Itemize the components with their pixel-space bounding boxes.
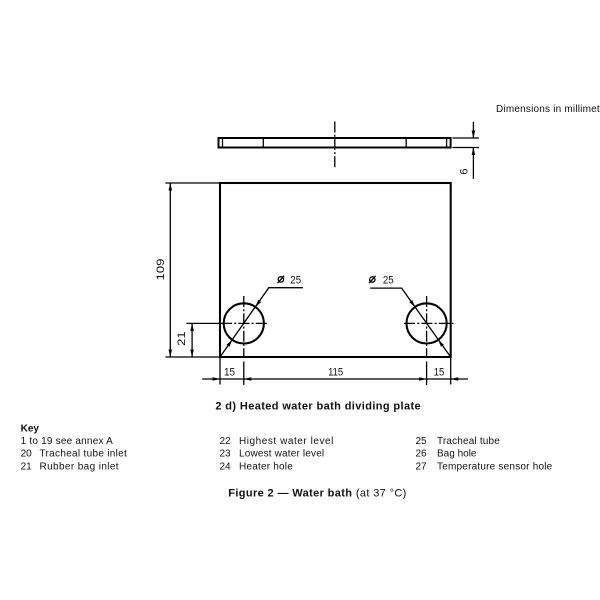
svg-text:25: 25 xyxy=(383,274,394,286)
svg-text:Temperature sensor hole: Temperature sensor hole xyxy=(437,462,553,473)
svg-text:Bag hole: Bag hole xyxy=(437,449,477,460)
svg-text:1 to 19 see annex A: 1 to 19 see annex A xyxy=(21,436,114,447)
svg-text:23: 23 xyxy=(220,449,232,460)
svg-text:15: 15 xyxy=(224,367,235,379)
svg-text:25: 25 xyxy=(416,436,428,447)
svg-text:109: 109 xyxy=(155,259,167,281)
svg-text:Key: Key xyxy=(21,424,40,435)
svg-text:2 d) Heated water bath dividin: 2 d) Heated water bath dividing plate xyxy=(215,400,421,412)
svg-text:Tracheal tube: Tracheal tube xyxy=(437,436,500,447)
svg-text:Rubber bag inlet: Rubber bag inlet xyxy=(40,462,119,473)
svg-text:24: 24 xyxy=(220,462,232,473)
svg-text:Highest water level: Highest water level xyxy=(239,436,334,447)
svg-text:Figure 2 — Water bath (at 37 °: Figure 2 — Water bath (at 37 °C) xyxy=(228,487,406,499)
svg-text:26: 26 xyxy=(416,449,428,460)
svg-text:25: 25 xyxy=(290,274,301,286)
svg-text:Heater hole: Heater hole xyxy=(239,462,293,473)
svg-text:Tracheal tube inlet: Tracheal tube inlet xyxy=(40,449,128,460)
svg-text:21: 21 xyxy=(176,331,188,346)
svg-text:15: 15 xyxy=(434,367,445,379)
svg-text:22: 22 xyxy=(220,436,232,447)
svg-text:6: 6 xyxy=(459,168,471,174)
svg-text:27: 27 xyxy=(416,462,428,473)
svg-text:115: 115 xyxy=(328,367,343,379)
svg-text:Dimensions in millimetres: Dimensions in millimetres xyxy=(496,104,600,115)
svg-text:20: 20 xyxy=(21,449,33,460)
svg-text:Lowest water level: Lowest water level xyxy=(239,449,324,460)
svg-text:21: 21 xyxy=(21,462,33,473)
